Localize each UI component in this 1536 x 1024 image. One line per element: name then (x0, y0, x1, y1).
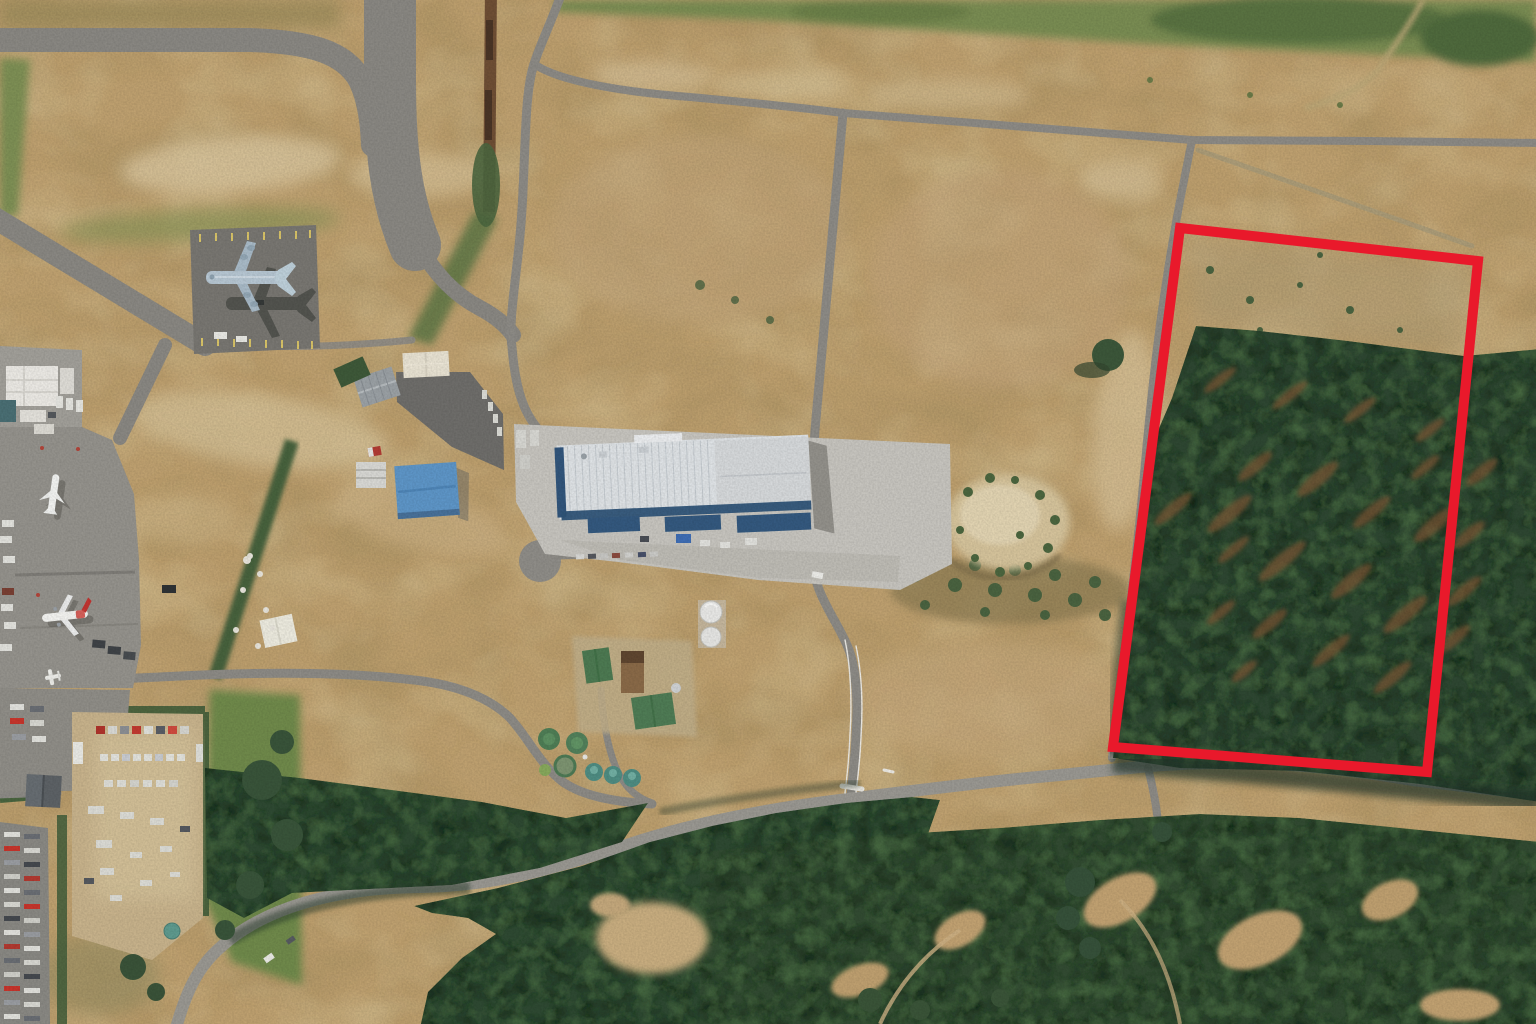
photo-grain-overlay (0, 0, 1536, 1024)
aerial-map-image (0, 0, 1536, 1024)
